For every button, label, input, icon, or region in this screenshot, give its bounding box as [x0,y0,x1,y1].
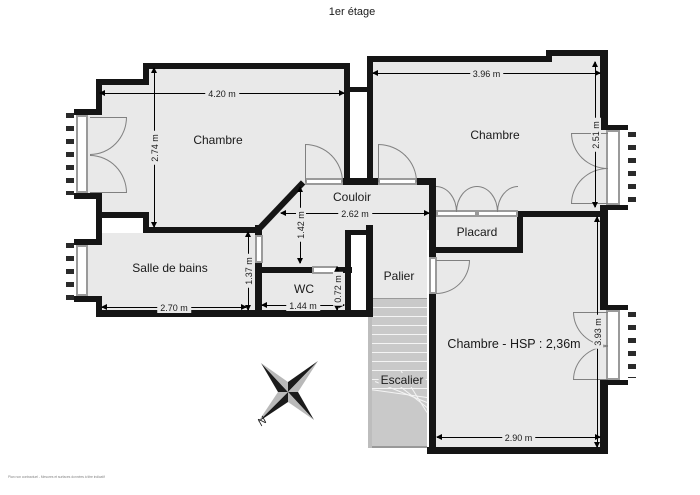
room-label-escalier: Escalier [379,373,426,387]
wall [600,50,608,125]
exterior-hatch [66,113,74,195]
wall [427,447,608,454]
dim-wc-width: 1.44 m [262,305,344,306]
stair-tread [371,334,427,335]
room-label-palier: Palier [384,269,415,283]
window [606,310,620,380]
wall [600,385,608,454]
dim-sdb-height: 1.37 m [248,232,249,310]
stair-tread [371,307,427,308]
floor-plan: 1er étage [0,0,700,495]
stair-tread [371,316,427,317]
wall [429,294,436,450]
compass-rose: N [252,356,324,428]
exterior-hatch [66,243,74,300]
dim-chambre1-width: 4.20 m [100,93,344,94]
wall [600,205,608,305]
stair-tread [371,298,427,299]
stair-tread [371,352,427,353]
wall [417,178,430,185]
floor-window-reveal [88,245,102,296]
wall [143,63,350,69]
footer-note: Plan non contractuel - Mesures et surfac… [8,475,105,479]
wall [96,218,102,239]
room-label-placard: Placard [457,225,498,239]
exterior-hatch [628,312,636,378]
room-label-chambre3: Chambre - HSP : 2,36m [447,337,580,351]
stair-tread [371,325,427,326]
dim-sdb-width: 2.70 m [102,307,246,308]
room-label-couloir: Couloir [333,190,371,204]
dim-chambre2-height: 2.51 m [595,62,596,207]
page-title: 1er étage [329,6,375,18]
wall [517,211,523,252]
wall [96,212,149,218]
wall [255,225,262,235]
stair-tread [371,388,427,389]
wall [96,310,372,317]
compass-north-label: N [255,414,269,428]
stair-tread [371,361,427,362]
wall [74,193,102,199]
door-sill [255,235,263,263]
exterior-hatch [628,132,636,204]
wall [600,380,628,385]
room-label-chambre2: Chambre [470,128,519,142]
wall [343,178,379,185]
wall [366,225,373,317]
wall [367,56,552,62]
stair-tread [371,370,427,371]
dim-chambre2-width: 3.96 m [373,73,600,74]
dim-chambre3-height: 3.93 m [597,217,598,447]
stairwell-side [368,317,372,448]
window [606,130,620,205]
wall [255,267,312,273]
wall [344,63,350,182]
window [76,245,88,296]
wall [546,50,608,56]
room-label-chambre1: Chambre [193,133,242,147]
window [76,115,88,193]
dim-wc-height: 0.72 m [337,267,338,310]
dim-couloir-height: 1.42 m [300,187,301,263]
wall [74,296,102,302]
wall [96,79,149,85]
wall [143,227,260,233]
room-label-wc: WC [294,282,314,296]
wall [345,230,351,317]
wall [429,247,523,253]
stair-edge [371,446,427,448]
dim-chambre1-height: 2.74 m [154,68,155,227]
room-label-sdb: Salle de bains [132,261,207,275]
dim-chambre3-width: 2.90 m [437,437,600,438]
stair-tread [371,343,427,344]
wall [429,178,436,257]
